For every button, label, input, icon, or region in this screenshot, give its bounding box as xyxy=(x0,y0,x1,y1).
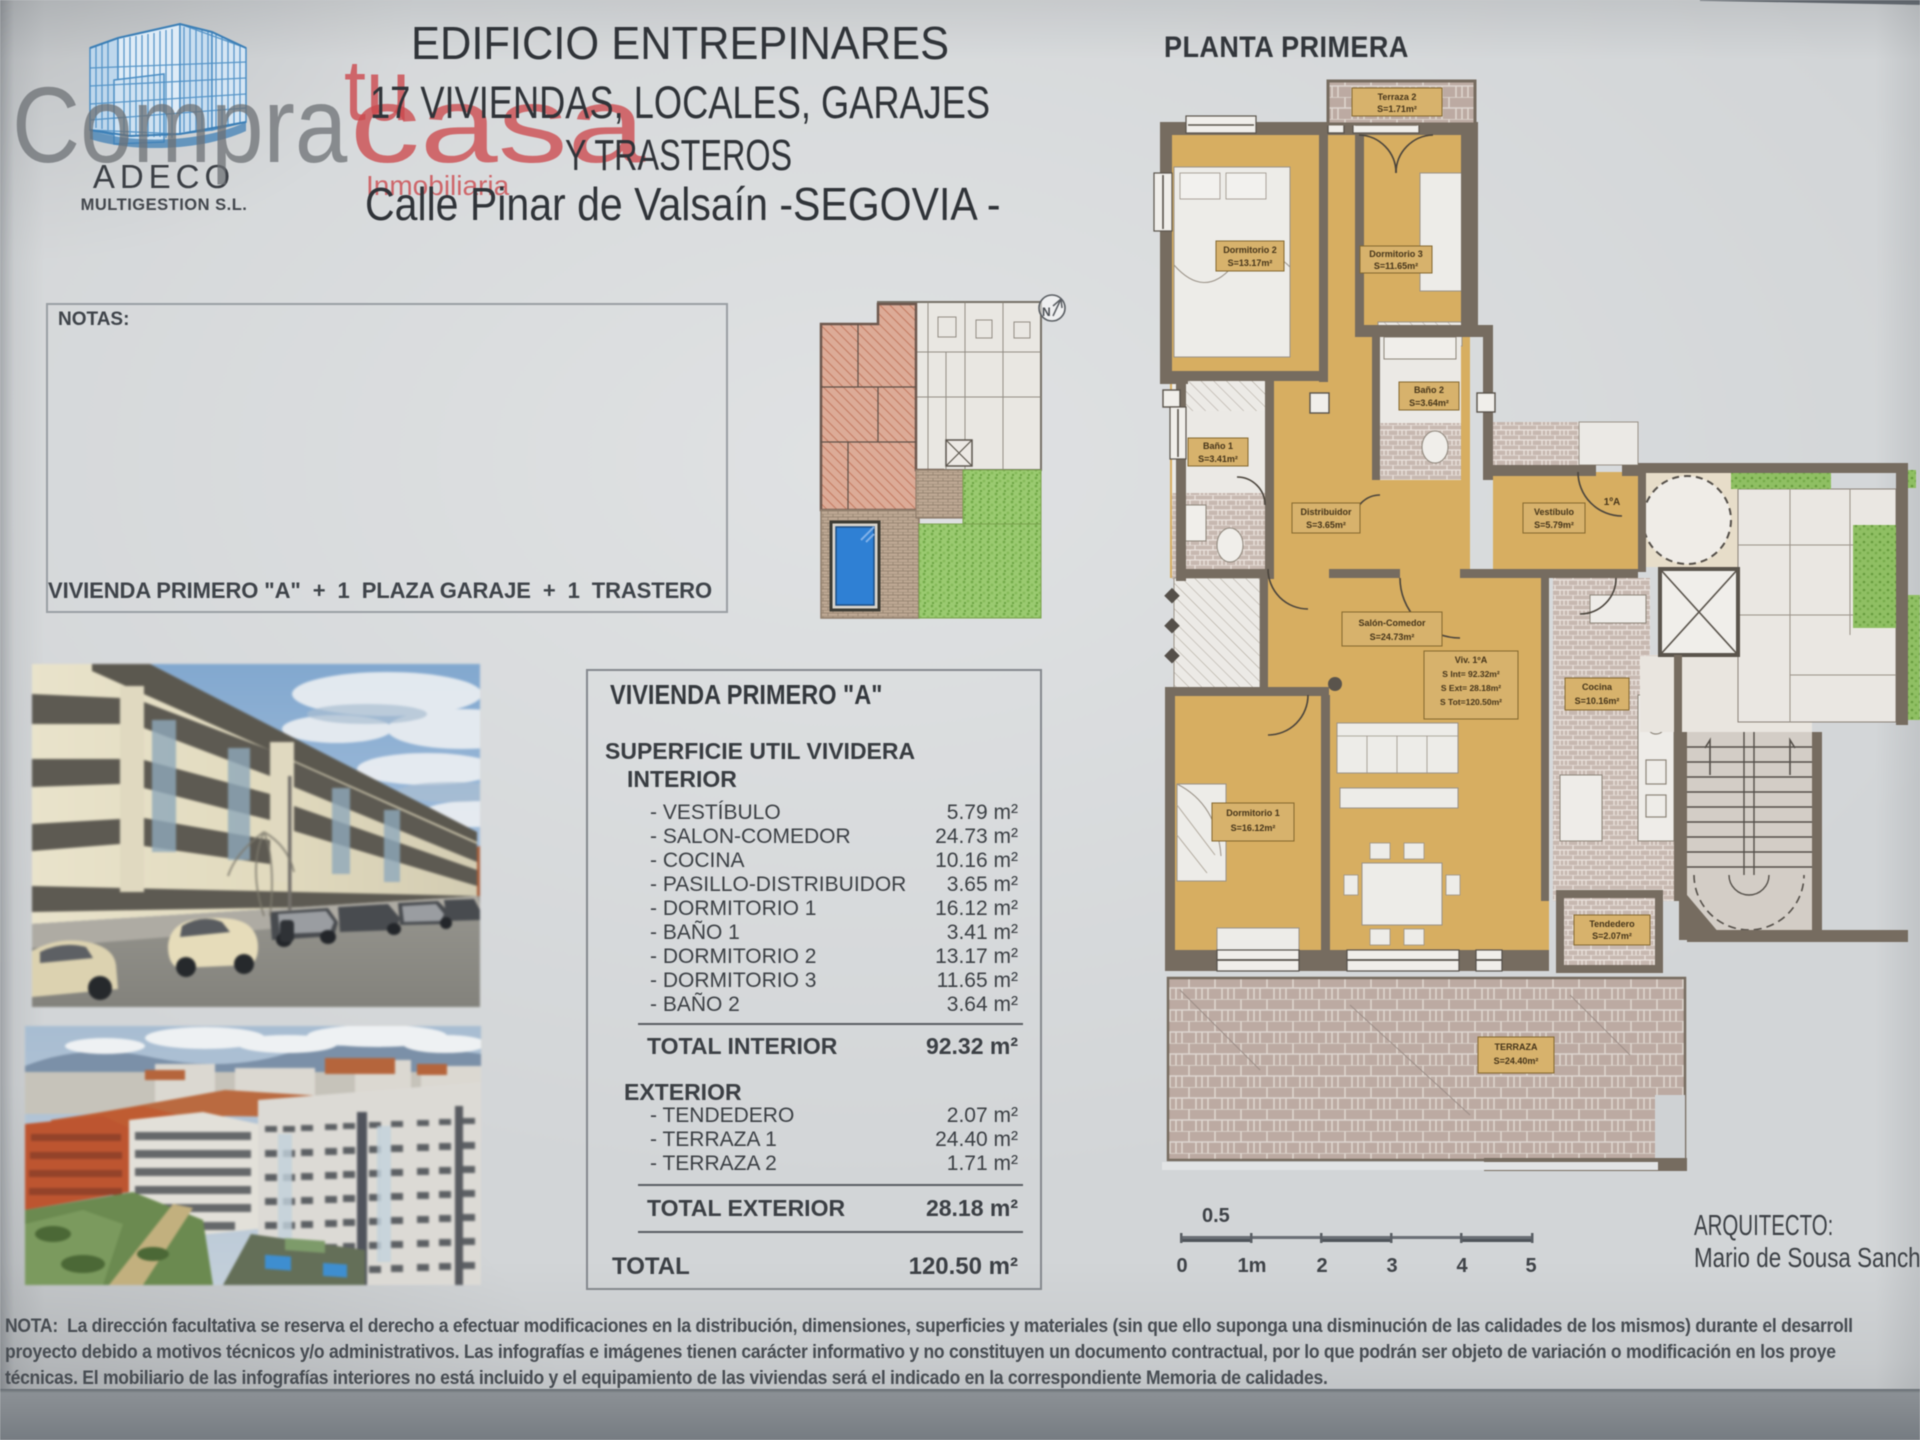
svg-text:S=2.07m²: S=2.07m² xyxy=(1592,931,1632,941)
svg-text:S Tot=120.50m²: S Tot=120.50m² xyxy=(1440,697,1502,707)
svg-text:Salón-Comedor: Salón-Comedor xyxy=(1358,618,1426,628)
svg-text:Dormitorio 1: Dormitorio 1 xyxy=(1226,808,1280,818)
svg-text:S=3.65m²: S=3.65m² xyxy=(1306,520,1346,530)
svg-text:S=16.12m²: S=16.12m² xyxy=(1231,823,1276,833)
svg-text:Tendedero: Tendedero xyxy=(1589,919,1635,929)
svg-text:S=3.41m²: S=3.41m² xyxy=(1198,454,1238,464)
svg-text:2: 2 xyxy=(1316,1255,1327,1277)
svg-text:Cocina: Cocina xyxy=(1582,682,1613,692)
svg-text:S=1.71m²: S=1.71m² xyxy=(1377,104,1417,114)
svg-text:S Int= 92.32m²: S Int= 92.32m² xyxy=(1442,669,1500,679)
svg-text:S=13.17m²: S=13.17m² xyxy=(1228,258,1273,268)
svg-text:Terraza 2: Terraza 2 xyxy=(1378,92,1417,102)
svg-text:TERRAZA: TERRAZA xyxy=(1495,1042,1538,1052)
svg-text:Dormitorio 2: Dormitorio 2 xyxy=(1223,245,1277,255)
svg-text:5: 5 xyxy=(1525,1255,1536,1277)
svg-text:1ºA: 1ºA xyxy=(1604,497,1620,508)
svg-text:S Ext= 28.18m²: S Ext= 28.18m² xyxy=(1441,683,1501,693)
svg-text:S=5.79m²: S=5.79m² xyxy=(1534,520,1574,530)
svg-text:Baño 2: Baño 2 xyxy=(1414,385,1444,395)
svg-text:Distribuidor: Distribuidor xyxy=(1301,507,1352,517)
svg-text:3: 3 xyxy=(1386,1255,1397,1277)
svg-text:4: 4 xyxy=(1456,1255,1468,1277)
svg-text:Vestíbulo: Vestíbulo xyxy=(1534,507,1575,517)
svg-text:S=11.65m²: S=11.65m² xyxy=(1374,261,1418,271)
svg-text:S=10.16m²: S=10.16m² xyxy=(1575,696,1620,706)
svg-text:Baño 1: Baño 1 xyxy=(1203,441,1233,451)
svg-text:Viv. 1ºA: Viv. 1ºA xyxy=(1455,655,1488,665)
svg-text:Dormitorio 3: Dormitorio 3 xyxy=(1369,249,1423,259)
svg-text:S=24.40m²: S=24.40m² xyxy=(1494,1056,1539,1066)
svg-text:1m: 1m xyxy=(1238,1255,1267,1277)
svg-text:0.5: 0.5 xyxy=(1202,1205,1230,1227)
svg-text:S=24.73m²: S=24.73m² xyxy=(1370,632,1415,642)
svg-text:0: 0 xyxy=(1176,1255,1187,1277)
svg-text:N: N xyxy=(1042,305,1051,319)
svg-text:S=3.64m²: S=3.64m² xyxy=(1409,398,1449,408)
